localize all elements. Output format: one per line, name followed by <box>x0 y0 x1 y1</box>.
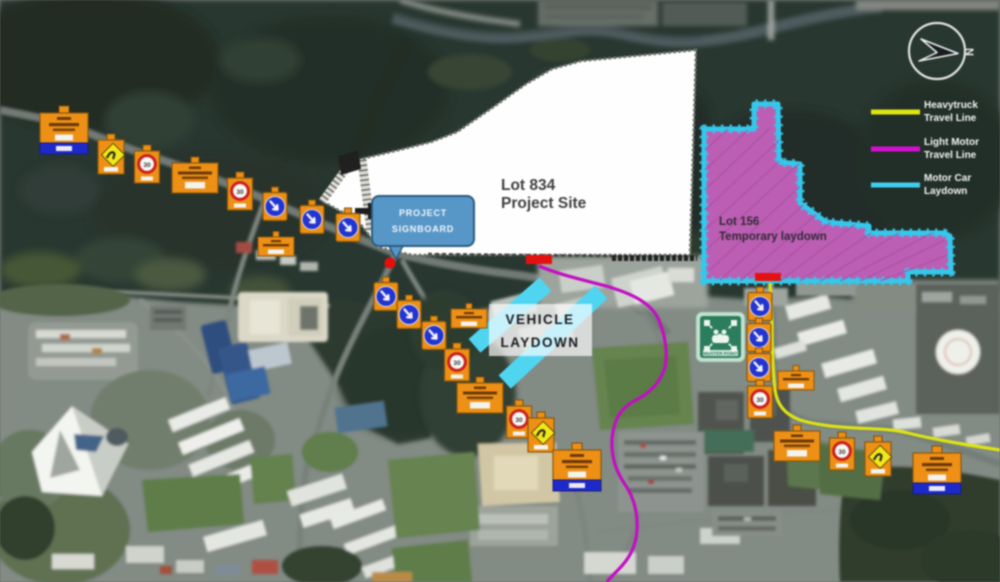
svg-text:N: N <box>963 48 975 56</box>
svg-text:Laydown: Laydown <box>924 186 967 197</box>
svg-text:PROJECT: PROJECT <box>399 208 447 218</box>
svg-text:MUSTER POINT: MUSTER POINT <box>703 351 737 356</box>
svg-text:Light Motor: Light Motor <box>924 137 979 148</box>
svg-text:Motor Car: Motor Car <box>924 173 971 184</box>
svg-text:Heavytruck: Heavytruck <box>924 100 978 111</box>
svg-text:LAYDOWN: LAYDOWN <box>500 335 579 350</box>
svg-text:SIGNBOARD: SIGNBOARD <box>392 224 454 234</box>
svg-text:Lot 834: Lot 834 <box>501 177 556 194</box>
svg-text:VEHICLE: VEHICLE <box>505 312 574 327</box>
svg-text:Travel Line: Travel Line <box>924 150 977 161</box>
svg-text:Travel Line: Travel Line <box>924 113 977 124</box>
svg-text:Temporary laydown: Temporary laydown <box>719 231 827 243</box>
svg-text:Project Site: Project Site <box>501 195 587 212</box>
svg-text:Lot 156: Lot 156 <box>719 216 759 228</box>
